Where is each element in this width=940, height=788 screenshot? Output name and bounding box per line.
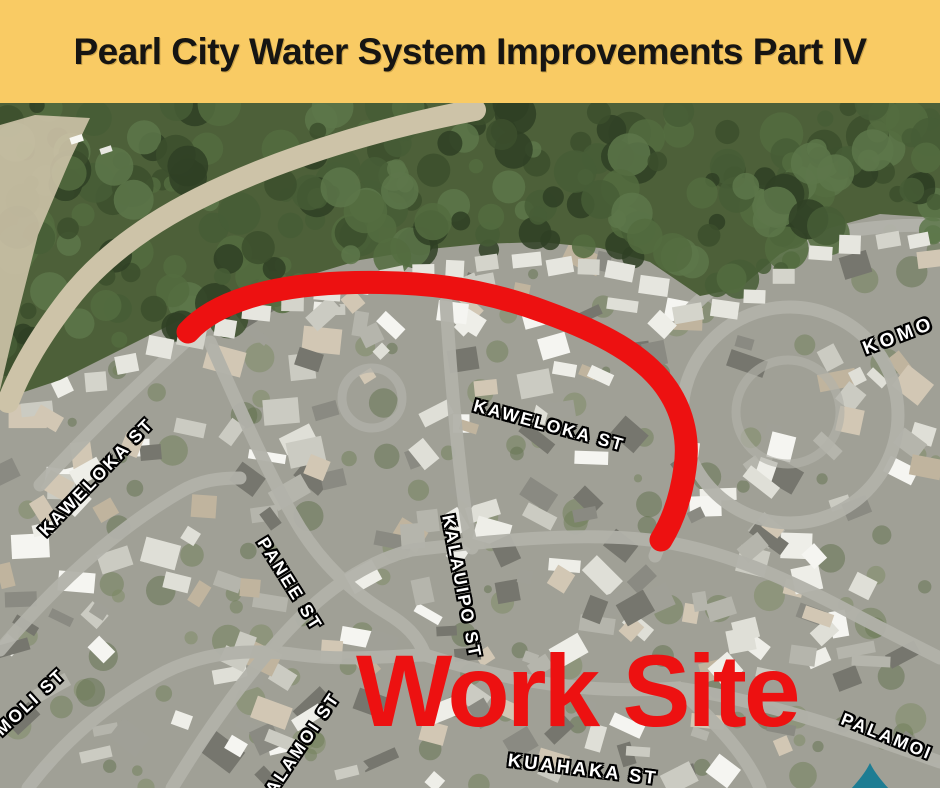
work-site-label: Work Site — [356, 640, 798, 742]
page-title: Pearl City Water System Improvements Par… — [74, 31, 867, 73]
water-drop-icon — [830, 763, 910, 788]
water-drop-logo — [806, 755, 940, 788]
satellite-map: KAWELOKA ST KAWELOKA ST KOMO PANEE ST KA… — [0, 103, 940, 788]
infographic-canvas: Pearl City Water System Improvements Par… — [0, 0, 940, 788]
header-banner: Pearl City Water System Improvements Par… — [0, 0, 940, 103]
